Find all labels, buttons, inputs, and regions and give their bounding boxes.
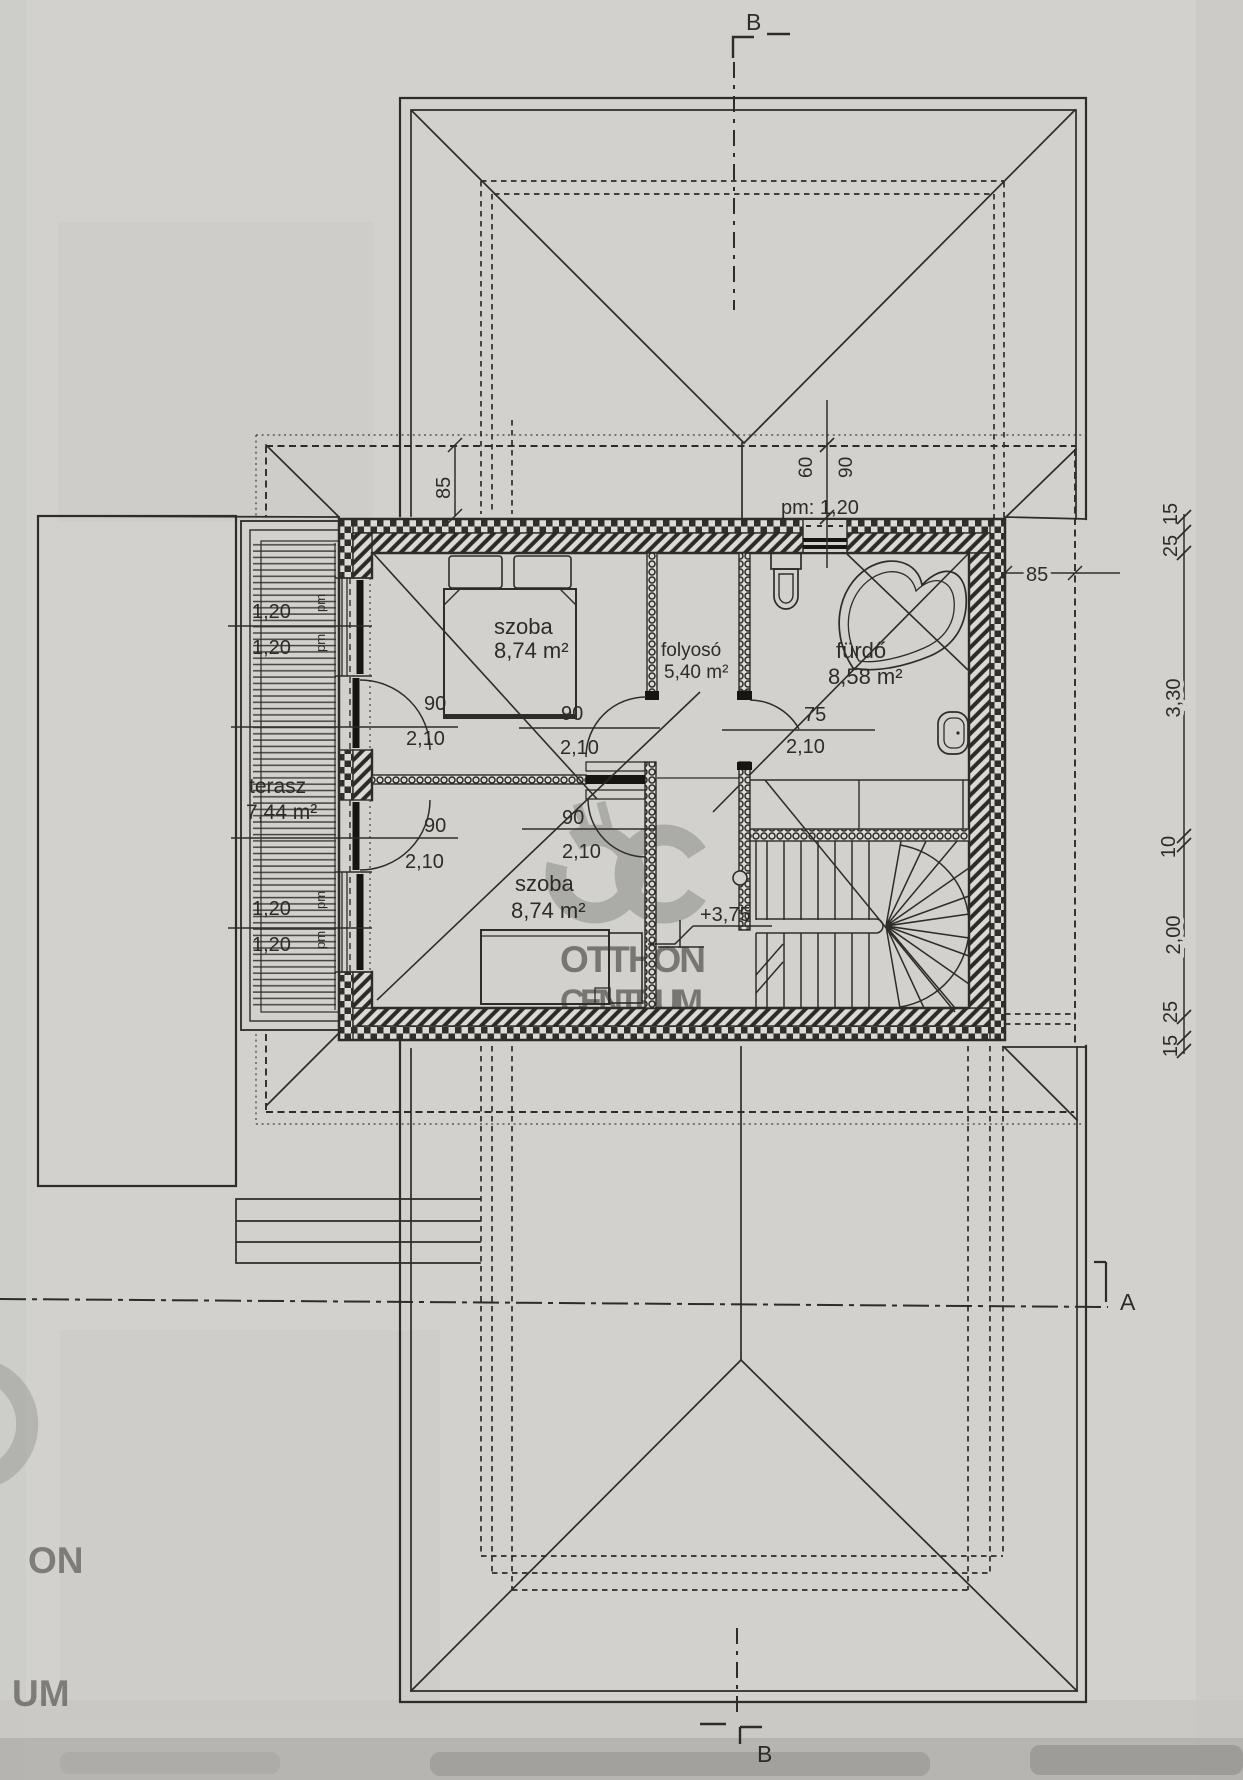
svg-text:szoba: szoba xyxy=(515,871,574,896)
svg-text:8,58 m²: 8,58 m² xyxy=(828,664,903,689)
svg-text:10: 10 xyxy=(1158,836,1180,858)
svg-text:+3,75: +3,75 xyxy=(700,904,751,926)
svg-text:1,20: 1,20 xyxy=(252,898,291,920)
svg-text:90: 90 xyxy=(562,807,584,829)
svg-text:2,10: 2,10 xyxy=(562,841,601,863)
svg-text:2,00: 2,00 xyxy=(1163,916,1185,955)
svg-text:90: 90 xyxy=(836,457,857,478)
svg-text:szoba: szoba xyxy=(494,614,553,639)
svg-text:3,30: 3,30 xyxy=(1163,679,1185,718)
svg-text:85: 85 xyxy=(433,477,455,499)
svg-text:fürdő: fürdő xyxy=(836,638,886,663)
svg-text:90: 90 xyxy=(561,703,583,725)
svg-text:90: 90 xyxy=(424,815,446,837)
svg-text:60: 60 xyxy=(796,457,817,478)
svg-text:1,20: 1,20 xyxy=(252,934,291,956)
svg-text:2,10: 2,10 xyxy=(406,728,445,750)
svg-text:15: 15 xyxy=(1160,503,1182,525)
svg-text:B: B xyxy=(746,9,761,35)
svg-text:2,10: 2,10 xyxy=(560,737,599,759)
svg-text:ON: ON xyxy=(28,1540,84,1581)
svg-text:terasz: terasz xyxy=(249,775,306,798)
svg-text:15: 15 xyxy=(1160,1035,1182,1057)
svg-text:75: 75 xyxy=(804,704,826,726)
svg-text:1,20: 1,20 xyxy=(252,637,291,659)
svg-text:7,44 m²: 7,44 m² xyxy=(246,801,317,824)
svg-text:25: 25 xyxy=(1160,1001,1182,1023)
svg-text:1,20: 1,20 xyxy=(252,601,291,623)
svg-text:A: A xyxy=(1120,1289,1136,1315)
svg-text:pm: pm xyxy=(313,634,328,652)
svg-text:UM: UM xyxy=(12,1673,70,1714)
svg-text:pm: pm xyxy=(313,931,328,949)
svg-text:pm: pm xyxy=(313,594,328,612)
svg-text:2,10: 2,10 xyxy=(786,736,825,758)
svg-text:pm: pm xyxy=(313,891,328,909)
svg-text:B: B xyxy=(757,1741,772,1767)
svg-text:25: 25 xyxy=(1160,535,1182,557)
svg-text:85: 85 xyxy=(1026,564,1048,586)
svg-text:5,40 m²: 5,40 m² xyxy=(664,662,728,683)
svg-text:OTTHON: OTTHON xyxy=(560,939,706,980)
svg-text:pm: 1,20: pm: 1,20 xyxy=(781,497,859,519)
svg-text:90: 90 xyxy=(424,693,446,715)
svg-text:8,74 m²: 8,74 m² xyxy=(511,898,586,923)
svg-text:folyosó: folyosó xyxy=(661,640,721,661)
svg-text:8,74 m²: 8,74 m² xyxy=(494,638,569,663)
svg-text:2,10: 2,10 xyxy=(405,851,444,873)
